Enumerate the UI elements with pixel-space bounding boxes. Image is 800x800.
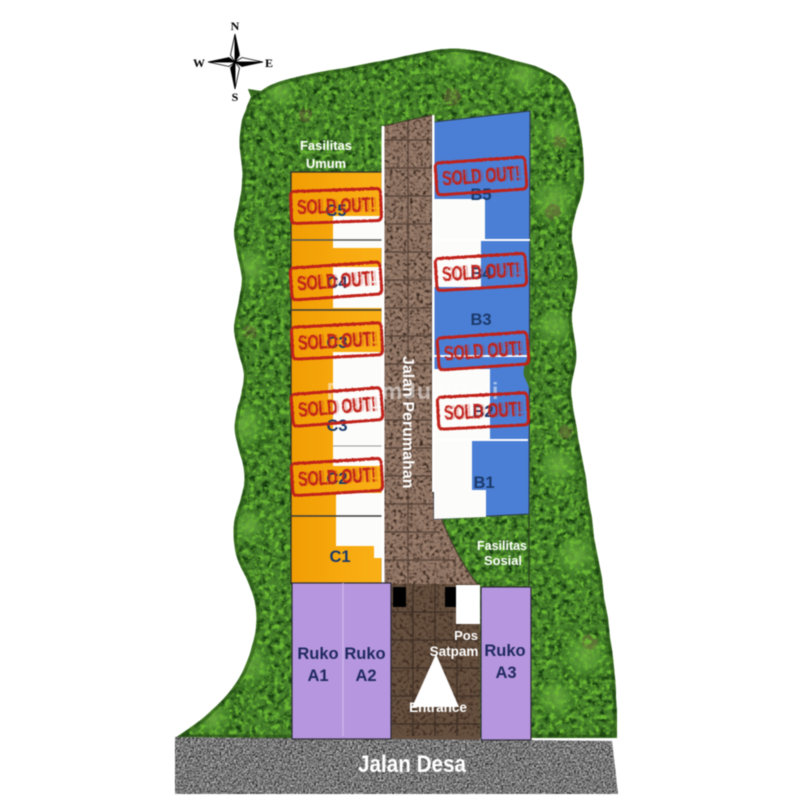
svg-text:Jalan Perumahan: Jalan Perumahan <box>399 356 416 489</box>
svg-text:Ruko: Ruko <box>484 642 525 660</box>
svg-text:A2: A2 <box>355 667 376 685</box>
svg-text:Fasilitas: Fasilitas <box>477 538 527 553</box>
svg-text:B3: B3 <box>470 311 491 329</box>
svg-text:C3: C3 <box>326 417 347 435</box>
svg-text:Entrance: Entrance <box>409 700 467 715</box>
svg-text:SOLD OUT!: SOLD OUT! <box>441 259 520 287</box>
svg-text:SOLD OUT!: SOLD OUT! <box>297 328 376 355</box>
svg-text:N: N <box>231 19 240 33</box>
svg-text:B5: B5 <box>470 186 491 204</box>
svg-text:B1: B1 <box>473 474 494 492</box>
svg-text:Satpam: Satpam <box>430 644 479 659</box>
svg-text:Ruko: Ruko <box>297 645 338 663</box>
svg-text:Umum: Umum <box>306 156 346 171</box>
svg-text:SOLD OUT!: SOLD OUT! <box>297 194 376 220</box>
svg-text:Ruko: Ruko <box>344 645 385 663</box>
svg-text:A1: A1 <box>307 667 328 685</box>
svg-text:E: E <box>265 56 273 70</box>
svg-text:Jalan Desa: Jalan Desa <box>358 751 467 778</box>
svg-text:W: W <box>193 56 205 70</box>
svg-text:A3: A3 <box>495 664 516 682</box>
svg-text:C1: C1 <box>329 548 350 566</box>
svg-text:SOLD OUT!: SOLD OUT! <box>297 464 376 492</box>
svg-text:Pos: Pos <box>454 628 478 643</box>
svg-text:S: S <box>232 90 239 104</box>
svg-text:SOLD OUT!: SOLD OUT! <box>443 398 522 425</box>
svg-text:Fasilitas: Fasilitas <box>300 138 352 153</box>
svg-text:Sosial: Sosial <box>484 553 522 568</box>
